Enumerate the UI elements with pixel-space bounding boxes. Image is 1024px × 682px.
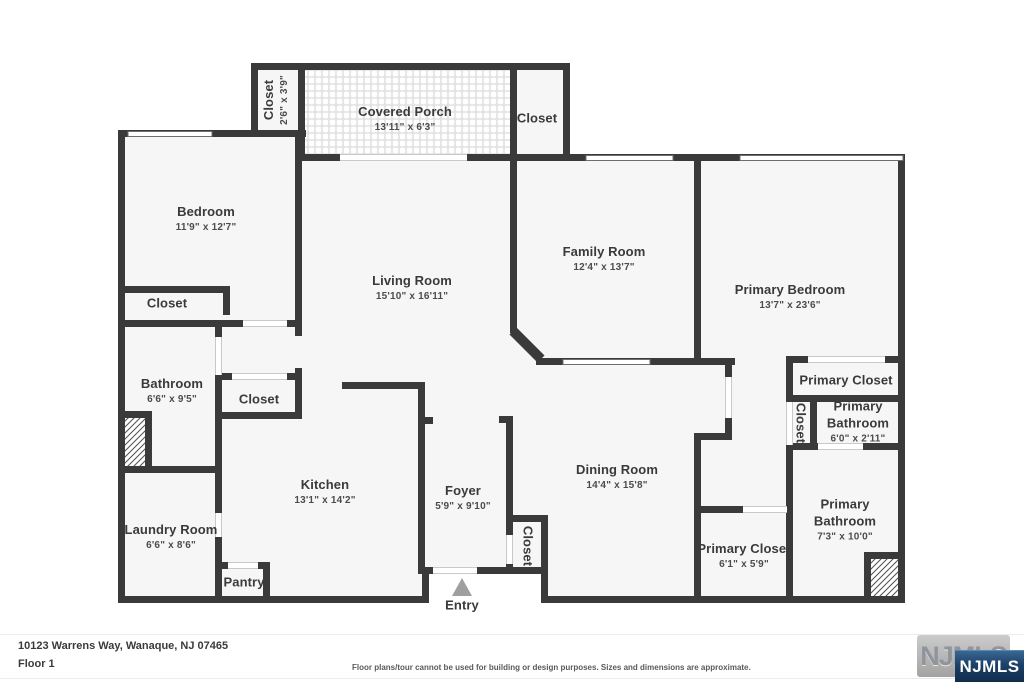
room-name: Bathroom	[141, 376, 203, 393]
primary-closet-upper-door	[808, 356, 885, 363]
entry-door	[433, 567, 477, 574]
room-label-living-room: Living Room 15'10" x 16'11"	[372, 273, 452, 303]
dining-hall-door	[725, 377, 732, 418]
room-label-primary-bathroom-large: Primary Bathroom 7'3" x 10'0"	[803, 497, 887, 544]
room-name: Primary Closet	[697, 541, 790, 558]
room-dims: 11'9" x 12'7"	[176, 221, 237, 234]
room-dims: 13'7" x 23'6"	[735, 299, 846, 312]
room-name: Family Room	[563, 244, 646, 261]
pantry-door	[228, 562, 258, 569]
room-label-closet-tl: Closet 2'6" x 3'9"	[261, 75, 291, 125]
room-name: Primary Bedroom	[735, 282, 846, 299]
room-dims: 12'4" x 13'7"	[563, 261, 646, 274]
room-label-covered-porch: Covered Porch 13'11" x 6'3"	[358, 104, 452, 134]
room-label-pantry: Pantry	[223, 575, 264, 592]
room-dims: 6'6" x 8'6"	[125, 539, 218, 552]
footer-divider-top	[0, 634, 1024, 635]
room-label-bathroom: Bathroom 6'6" x 9'5"	[141, 376, 203, 406]
bathroom-shower-hatch	[125, 418, 145, 466]
room-name: Living Room	[372, 273, 452, 290]
floorplan-page: Bedroom 11'9" x 12'7" Closet 2'6" x 3'9"…	[0, 0, 1024, 682]
room-name: Primary Bathroom	[803, 497, 887, 531]
room-name: Closet	[239, 392, 279, 409]
primary-shower-hatch	[871, 559, 898, 596]
porch-opening	[340, 154, 467, 161]
room-label-hall-closet: Closet	[239, 392, 279, 409]
room-name: Dining Room	[576, 462, 658, 479]
entry-label: Entry	[445, 598, 479, 615]
bedroom-door	[243, 320, 287, 327]
foyer-closet-door	[506, 535, 513, 564]
room-name: Closet	[519, 526, 536, 566]
room-name: Covered Porch	[358, 104, 452, 121]
room-dims: 14'4" x 15'8"	[576, 479, 658, 492]
room-label-closet-tr: Closet	[517, 111, 557, 128]
room-label-family-room: Family Room 12'4" x 13'7"	[563, 244, 646, 274]
family-room-rear-window	[563, 360, 650, 365]
room-label-bedroom: Bedroom 11'9" x 12'7"	[176, 204, 237, 234]
floorplan-canvas	[0, 0, 1024, 682]
room-name: Pantry	[223, 575, 264, 592]
primary-bedroom-window	[740, 156, 903, 161]
room-name: Primary Closet	[799, 373, 892, 390]
disclaimer-text: Floor plans/tour cannot be used for buil…	[352, 663, 751, 672]
primary-closet-lower-door	[743, 506, 787, 513]
room-name: Primary Bathroom	[816, 399, 900, 433]
room-dims: 6'0" x 2'11"	[816, 432, 900, 445]
hall-closet-door	[232, 373, 287, 380]
room-dims: 13'1" x 14'2"	[294, 494, 355, 507]
room-dims: 15'10" x 16'11"	[372, 290, 452, 303]
room-name: Foyer	[435, 483, 491, 500]
room-name: Bedroom	[176, 204, 237, 221]
room-dims: 6'1" x 5'9"	[697, 558, 790, 571]
room-name: Kitchen	[294, 477, 355, 494]
room-name: Closet	[517, 111, 557, 128]
room-name: Closet	[792, 403, 809, 443]
room-label-primary-bedroom: Primary Bedroom 13'7" x 23'6"	[735, 282, 846, 312]
njmls-logo-badge: NJMLS	[955, 650, 1024, 682]
room-label-kitchen: Kitchen 13'1" x 14'2"	[294, 477, 355, 507]
family-room-window	[586, 156, 673, 161]
room-label-dining-room: Dining Room 14'4" x 15'8"	[576, 462, 658, 492]
room-label-primary-bathroom-small: Primary Bathroom 6'0" x 2'11"	[816, 399, 900, 446]
room-dims: 2'6" x 3'9"	[278, 75, 291, 125]
property-address: 10123 Warrens Way, Wanaque, NJ 07465	[18, 640, 228, 652]
room-dims: 6'6" x 9'5"	[141, 393, 203, 406]
floor-number: Floor 1	[18, 658, 55, 670]
room-label-laundry-room: Laundry Room 6'6" x 8'6"	[125, 522, 218, 552]
room-label-bedroom-closet: Closet	[147, 296, 187, 313]
footer-divider-bottom	[0, 678, 1024, 679]
room-dims: 13'11" x 6'3"	[358, 121, 452, 134]
bedroom-window	[128, 132, 212, 137]
room-dims: 5'9" x 9'10"	[435, 500, 491, 513]
room-label-primary-closet-upper: Primary Closet	[799, 373, 892, 390]
bathroom-door	[215, 337, 222, 375]
room-label-primary-hall-closet: Closet	[792, 403, 809, 443]
room-label-primary-closet-lower: Primary Closet 6'1" x 5'9"	[697, 541, 790, 571]
room-label-foyer-closet: Closet	[519, 526, 536, 566]
room-name: Closet	[147, 296, 187, 313]
room-name: Closet	[261, 75, 278, 125]
room-name: Laundry Room	[125, 522, 218, 539]
room-dims: 7'3" x 10'0"	[803, 530, 887, 543]
room-label-foyer: Foyer 5'9" x 9'10"	[435, 483, 491, 513]
